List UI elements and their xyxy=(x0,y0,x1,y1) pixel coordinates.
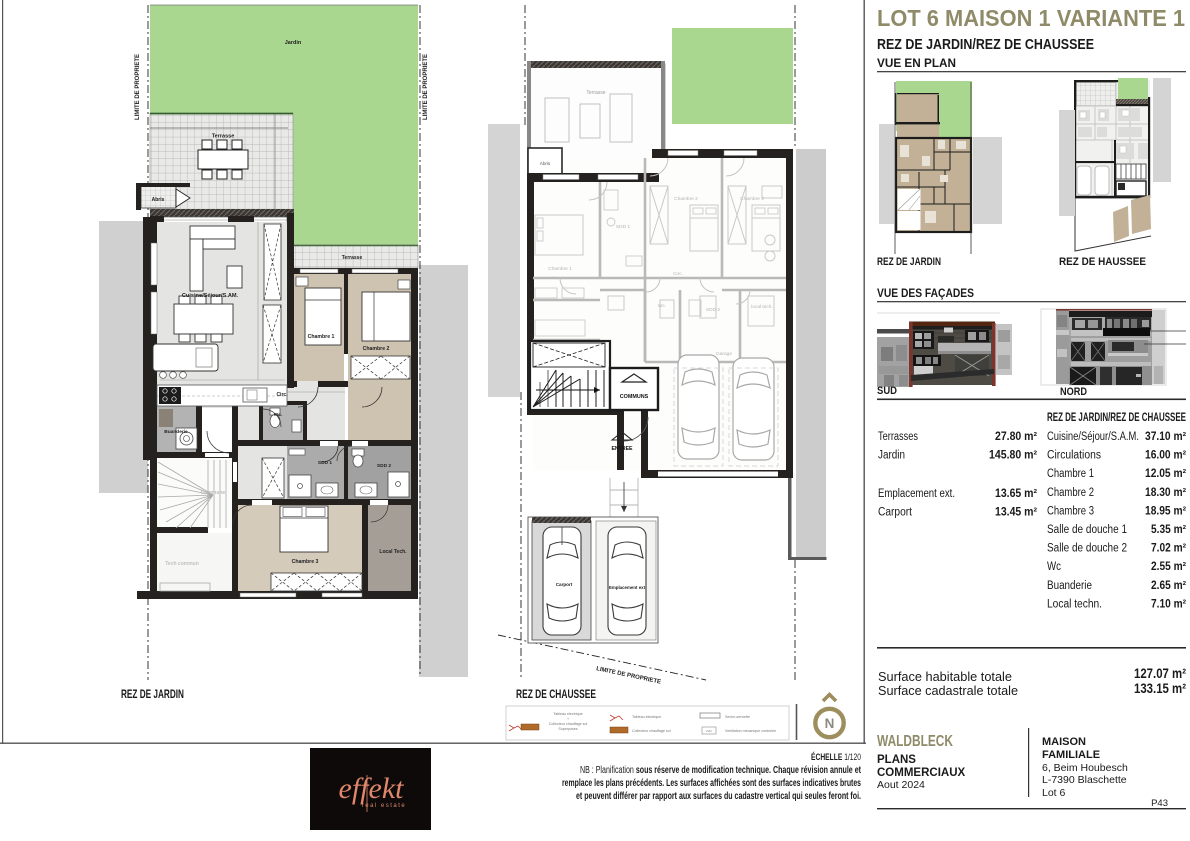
svg-text:Chambre 2: Chambre 2 xyxy=(674,196,698,202)
svg-text:Wc: Wc xyxy=(1047,561,1061,573)
svg-text:Chambre 3: Chambre 3 xyxy=(740,196,764,202)
svg-text:Emplacement ext.: Emplacement ext. xyxy=(878,488,955,500)
svg-text:Garage: Garage xyxy=(716,351,732,357)
svg-text:37.10 m²: 37.10 m² xyxy=(1145,431,1186,443)
svg-text:L-7390 Blaschette: L-7390 Blaschette xyxy=(1042,774,1127,786)
svg-text:et peuvent différer par rappor: et peuvent différer par rapport aux surf… xyxy=(576,791,861,802)
svg-text:REZ DE JARDIN: REZ DE JARDIN xyxy=(877,256,941,268)
svg-text:Surface habitable totale: Surface habitable totale xyxy=(878,669,1012,684)
svg-text:REZ DE JARDIN: REZ DE JARDIN xyxy=(121,689,184,701)
svg-text:Collecteur chauffage sol: Collecteur chauffage sol xyxy=(632,729,671,733)
svg-text:Jardin: Jardin xyxy=(285,40,302,46)
svg-text:REZ DE CHAUSSEE: REZ DE CHAUSSEE xyxy=(516,689,596,701)
svg-text:Local Tech.: Local Tech. xyxy=(379,549,407,555)
svg-text:Wc.: Wc. xyxy=(274,412,283,418)
svg-text:Circulations: Circulations xyxy=(1047,450,1101,462)
svg-text:WALDBLECK: WALDBLECK xyxy=(877,733,953,750)
svg-text:18.95 m²: 18.95 m² xyxy=(1145,505,1186,517)
svg-text:local tech.: local tech. xyxy=(751,304,773,310)
svg-text:SDD 1: SDD 1 xyxy=(318,460,332,466)
svg-text:Chambre 2: Chambre 2 xyxy=(1047,487,1094,499)
svg-text:Terrasse: Terrasse xyxy=(212,134,235,140)
svg-text:Salle de douche 1: Salle de douche 1 xyxy=(1047,524,1127,536)
svg-text:Salle de douche 2: Salle de douche 2 xyxy=(1047,543,1127,555)
svg-text:Terrasses: Terrasses xyxy=(878,431,918,443)
svg-text:27.80 m²: 27.80 m² xyxy=(995,431,1037,443)
svg-text:13.65 m²: 13.65 m² xyxy=(995,488,1037,500)
svg-text:145.80 m²: 145.80 m² xyxy=(989,450,1037,462)
svg-text:Commune: Commune xyxy=(201,490,226,496)
svg-text:16.00 m²: 16.00 m² xyxy=(1145,450,1186,462)
svg-text:remplace les plans précédents.: remplace les plans précédents. Les surfa… xyxy=(562,778,861,789)
svg-text:Carport: Carport xyxy=(556,582,573,587)
svg-text:ENTREE: ENTREE xyxy=(611,446,633,452)
svg-text:Wc.: Wc. xyxy=(658,303,666,309)
svg-text:13.45 m²: 13.45 m² xyxy=(995,507,1037,519)
svg-text:LIMITE DE PROPRIETE: LIMITE DE PROPRIETE xyxy=(596,666,662,686)
svg-text:Chambre 2: Chambre 2 xyxy=(363,346,390,352)
svg-text:Cuisine/Séjour/S.A.M.: Cuisine/Séjour/S.A.M. xyxy=(1047,431,1139,443)
svg-text:FAMILIALE: FAMILIALE xyxy=(1042,749,1100,761)
svg-text:Chambre 3: Chambre 3 xyxy=(1047,505,1094,517)
svg-text:Tech commun: Tech commun xyxy=(165,561,199,567)
svg-text:Chambre 3: Chambre 3 xyxy=(292,559,319,565)
svg-text:Surface cadastrale totale: Surface cadastrale totale xyxy=(878,683,1018,698)
svg-text:ÉCHELLE 1/120: ÉCHELLE 1/120 xyxy=(811,752,861,763)
svg-text:Chambre 1: Chambre 1 xyxy=(1047,468,1094,480)
svg-text:VUE EN PLAN: VUE EN PLAN xyxy=(877,56,956,70)
svg-text:effekt: effekt xyxy=(339,772,405,805)
svg-text:Abris: Abris xyxy=(152,197,165,203)
svg-text:Aout 2024: Aout 2024 xyxy=(877,779,925,791)
svg-text:+: + xyxy=(567,717,569,721)
svg-text:REZ DE JARDIN/REZ DE CHAUSSEE: REZ DE JARDIN/REZ DE CHAUSSEE xyxy=(1047,412,1186,424)
svg-text:Tableau electrique: Tableau electrique xyxy=(632,715,661,719)
svg-text:MAISON: MAISON xyxy=(1042,736,1086,748)
svg-text:Local techn.: Local techn. xyxy=(1047,598,1102,610)
svg-text:Carport: Carport xyxy=(878,507,913,519)
svg-text:18.30 m²: 18.30 m² xyxy=(1145,487,1186,499)
svg-text:5.35 m²: 5.35 m² xyxy=(1151,524,1186,536)
svg-text:COMMERCIAUX: COMMERCIAUX xyxy=(877,767,965,779)
svg-text:LIMITE DE PROPRIETE: LIMITE DE PROPRIETE xyxy=(135,54,141,120)
svg-text:Buanderie: Buanderie xyxy=(164,429,188,435)
svg-text:127.07 m²: 127.07 m² xyxy=(1134,666,1186,681)
svg-text:6, Beim Houbesch: 6, Beim Houbesch xyxy=(1042,762,1128,774)
svg-text:Tableau electrique: Tableau electrique xyxy=(553,712,582,716)
svg-text:Terrasse: Terrasse xyxy=(586,90,605,96)
svg-text:Cuisine/Séjour/S.AM.: Cuisine/Séjour/S.AM. xyxy=(182,293,239,299)
svg-text:Chambre 1: Chambre 1 xyxy=(308,334,335,340)
svg-text:SUD: SUD xyxy=(877,385,897,397)
svg-text:Terrasse: Terrasse xyxy=(342,255,363,261)
svg-text:Ventilation mecanique controle: Ventilation mecanique controlee xyxy=(725,729,776,733)
svg-text:N: N xyxy=(825,716,835,731)
svg-text:133.15 m²: 133.15 m² xyxy=(1134,681,1186,696)
svg-text:NORD: NORD xyxy=(1060,386,1087,398)
svg-text:LIMITE DE PROPRIETE: LIMITE DE PROPRIETE xyxy=(423,54,429,120)
svg-text:Emplacement ext: Emplacement ext xyxy=(609,585,646,590)
svg-text:REZ DE HAUSSEE: REZ DE HAUSSEE xyxy=(1059,256,1146,268)
svg-text:REZ DE JARDIN/REZ DE CHAUSSEE: REZ DE JARDIN/REZ DE CHAUSSEE xyxy=(877,37,1094,53)
svg-text:Buanderie: Buanderie xyxy=(1047,580,1092,592)
svg-text:Chambre 1: Chambre 1 xyxy=(548,266,572,272)
svg-text:VMC: VMC xyxy=(706,729,714,733)
svg-text:Abris: Abris xyxy=(540,161,551,166)
svg-text:PLANS: PLANS xyxy=(877,754,916,766)
svg-text:SDD 2: SDD 2 xyxy=(377,463,391,469)
svg-text:Superposes: Superposes xyxy=(558,727,577,731)
svg-text:12.05 m²: 12.05 m² xyxy=(1145,468,1186,480)
svg-text:Circ.: Circ. xyxy=(673,271,683,277)
svg-text:VUE DES FAÇADES: VUE DES FAÇADES xyxy=(877,286,974,300)
svg-text:7.02 m²: 7.02 m² xyxy=(1151,543,1186,555)
svg-text:Collecteur chauffage sol: Collecteur chauffage sol xyxy=(549,722,588,726)
svg-text:2.55 m²: 2.55 m² xyxy=(1151,561,1186,573)
svg-text:SDD 1: SDD 1 xyxy=(616,224,630,230)
svg-text:Lot 6: Lot 6 xyxy=(1042,787,1066,799)
svg-text:COMMUNS: COMMUNS xyxy=(620,394,649,400)
svg-text:Seche-serviette: Seche-serviette xyxy=(725,715,750,719)
svg-text:P43: P43 xyxy=(1151,798,1168,809)
svg-text:real estate: real estate xyxy=(362,803,407,809)
svg-text:2.65 m²: 2.65 m² xyxy=(1151,580,1186,592)
svg-text:SDD 2: SDD 2 xyxy=(706,307,720,313)
svg-text:Jardin: Jardin xyxy=(878,450,905,462)
svg-text:LOT 6 MAISON 1 VARIANTE 1: LOT 6 MAISON 1 VARIANTE 1 xyxy=(877,5,1185,31)
svg-text:NB : Planification sous réserv: NB : Planification sous réserve de modif… xyxy=(580,765,861,776)
svg-text:7.10 m²: 7.10 m² xyxy=(1151,598,1186,610)
svg-text:Circ.: Circ. xyxy=(276,392,288,398)
